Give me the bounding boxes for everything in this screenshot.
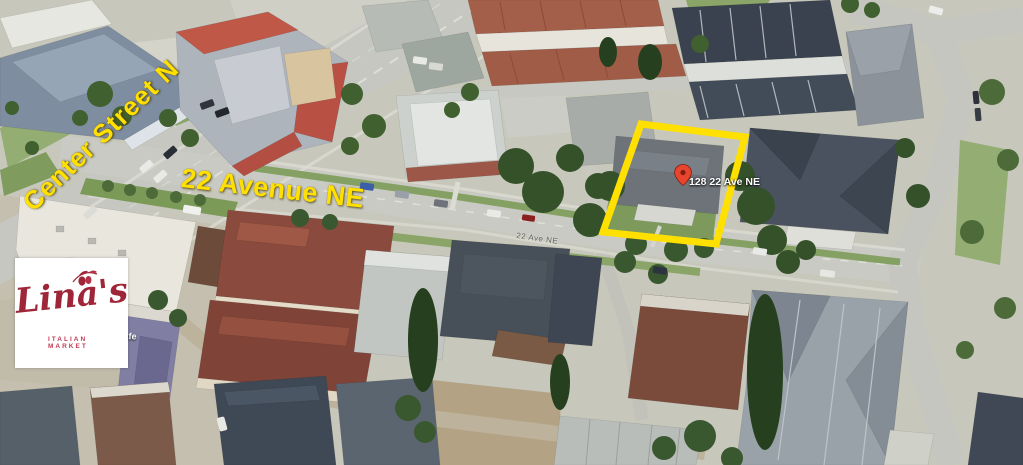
- logo-name: Lina's: [13, 270, 130, 322]
- property-address-label: 128 22 Ave NE: [689, 176, 760, 188]
- linas-logo: Lina's ITALIAN MARKET: [15, 258, 128, 368]
- aerial-map: Center Street N 22 Avenue NE 128 22 Ave …: [0, 0, 1023, 465]
- logo-tagline: ITALIAN MARKET: [48, 336, 128, 350]
